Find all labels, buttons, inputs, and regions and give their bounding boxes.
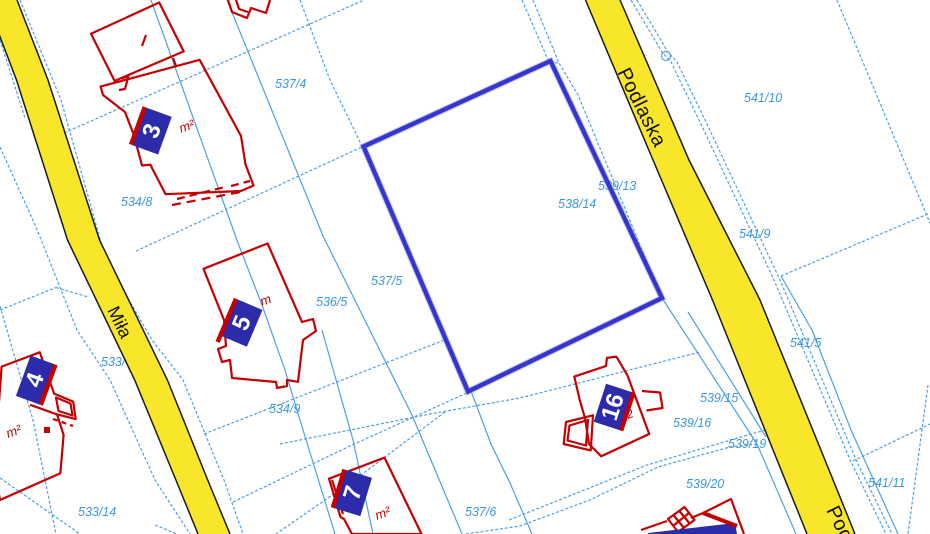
- svg-text:539/19: 539/19: [728, 437, 766, 451]
- svg-text:538/14: 538/14: [558, 197, 596, 211]
- svg-text:541/11: 541/11: [868, 476, 905, 490]
- svg-text:536/5: 536/5: [316, 295, 347, 309]
- svg-text:534/9: 534/9: [269, 402, 300, 416]
- svg-text:537/5: 537/5: [371, 274, 402, 288]
- svg-text:541/9: 541/9: [739, 227, 770, 241]
- svg-text:541/10: 541/10: [744, 91, 782, 105]
- svg-text:539/15: 539/15: [700, 391, 738, 405]
- svg-text:539/16: 539/16: [673, 416, 711, 430]
- svg-text:533/14: 533/14: [78, 505, 116, 519]
- svg-text:541/5: 541/5: [790, 336, 821, 350]
- svg-text:534/8: 534/8: [121, 195, 152, 209]
- svg-text:539/20: 539/20: [686, 477, 724, 491]
- svg-text:537/4: 537/4: [275, 77, 306, 91]
- svg-text:537/6: 537/6: [465, 505, 496, 519]
